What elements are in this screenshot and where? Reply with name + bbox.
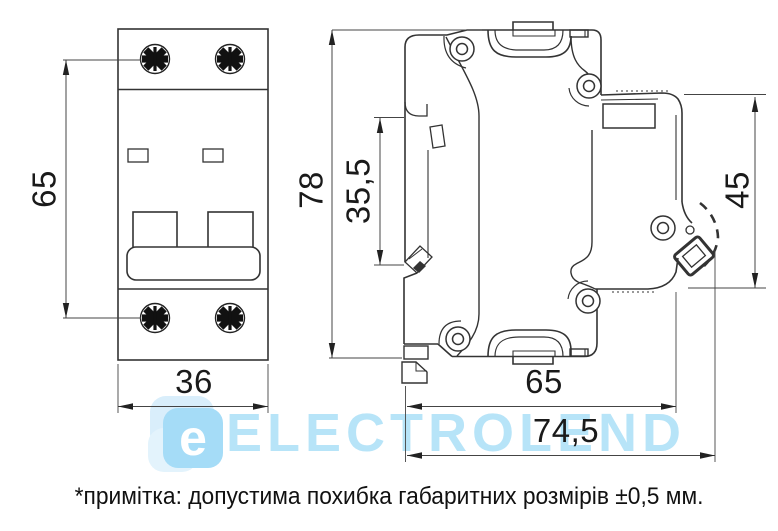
terminal-screw-icon bbox=[141, 45, 170, 74]
toggle-handle-front bbox=[133, 212, 177, 248]
dim-label-depth-body: 65 bbox=[525, 363, 563, 400]
side-view bbox=[402, 22, 718, 383]
breaker-front-body bbox=[118, 29, 268, 360]
din-rail-recess bbox=[603, 104, 655, 128]
dim-label-clip-zone: 45 bbox=[719, 171, 756, 209]
din-rail-wing-bottom bbox=[595, 258, 678, 289]
front-view bbox=[118, 29, 268, 360]
dimension-labels: 65 36 78 35,5 45 65 74,5 bbox=[26, 158, 756, 449]
tolerance-note-text: *примітка: допустима похибка габаритних … bbox=[75, 483, 704, 511]
terminal-screw-icon bbox=[141, 304, 170, 333]
drawing-page: e ELECTROLEND bbox=[0, 0, 778, 531]
toggle-bar bbox=[127, 247, 260, 280]
housing-rivet-icon bbox=[446, 327, 470, 351]
terminal-screw-icon bbox=[216, 45, 245, 74]
label-window bbox=[203, 149, 223, 162]
housing-rivet-icon bbox=[576, 289, 600, 313]
dim-label-front-width: 36 bbox=[175, 363, 213, 400]
toggle-handle-front bbox=[208, 212, 253, 248]
pivot-dot bbox=[686, 226, 694, 234]
technical-drawing: 65 36 78 35,5 45 65 74,5 bbox=[0, 0, 778, 531]
dimension-arrows bbox=[63, 30, 758, 459]
label-window bbox=[128, 149, 148, 162]
busbar-tab-top bbox=[513, 22, 553, 30]
terminal-screw-icon bbox=[216, 304, 245, 333]
toggle-handle-side bbox=[673, 236, 714, 276]
dim-label-side-height: 78 bbox=[293, 171, 330, 209]
housing-rivet-icon bbox=[651, 216, 675, 240]
din-slider bbox=[404, 346, 428, 359]
din-rail-wing-top bbox=[601, 93, 682, 202]
dim-label-depth-total: 74,5 bbox=[533, 412, 599, 449]
housing-rivet-icon bbox=[577, 74, 601, 98]
dim-label-rail-offset: 35,5 bbox=[340, 158, 377, 224]
dimension-lines bbox=[63, 30, 766, 462]
din-clip-hook bbox=[430, 125, 445, 148]
din-slider-foot bbox=[402, 362, 427, 383]
dim-label-front-height: 65 bbox=[26, 170, 63, 208]
tolerance-note: *примітка: допустима похибка габаритних … bbox=[0, 483, 778, 511]
housing-rivet-icon bbox=[450, 37, 474, 61]
